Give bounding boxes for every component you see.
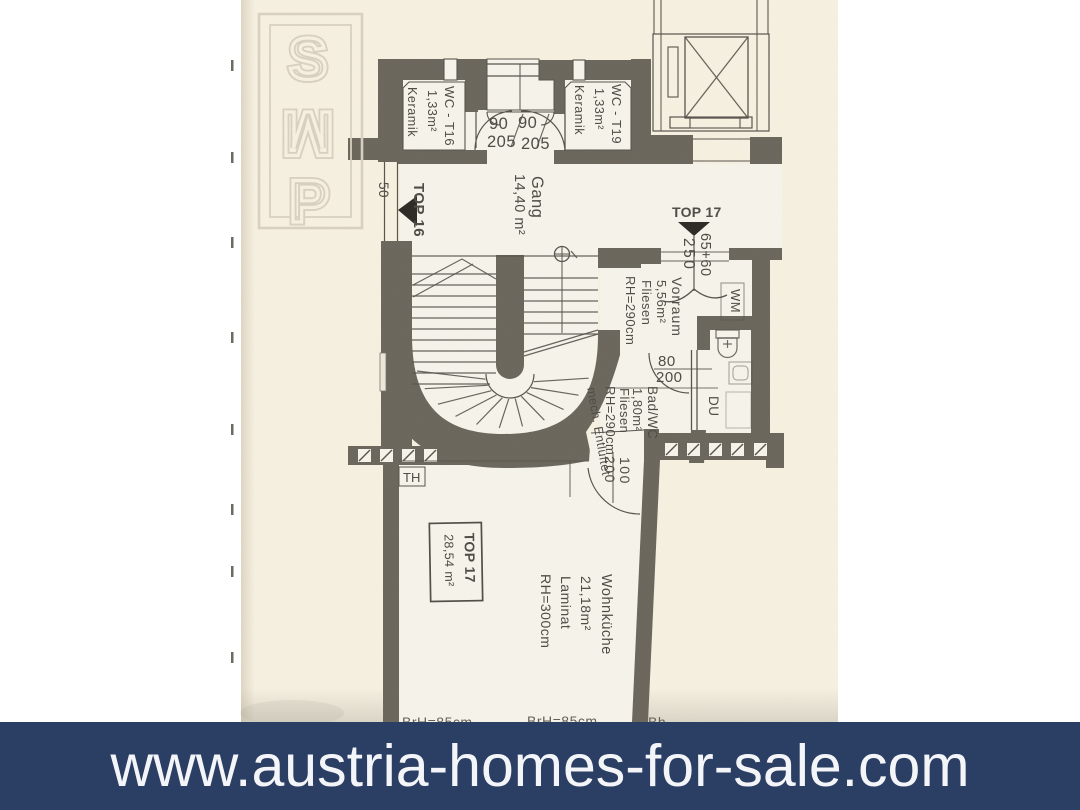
svg-text:www.austria-homes-for-sale.com: www.austria-homes-for-sale.com <box>109 733 969 799</box>
